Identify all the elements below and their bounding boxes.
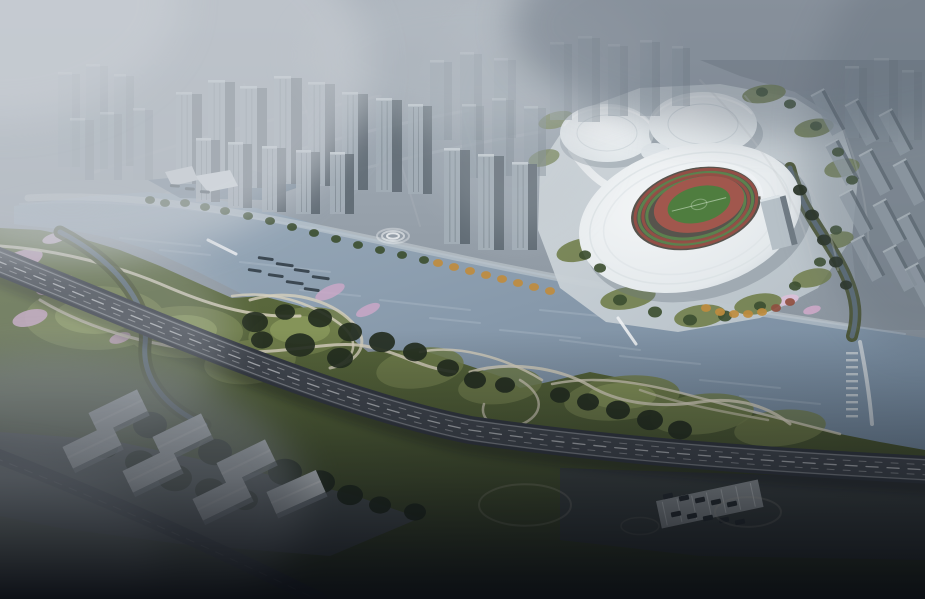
tree-cluster	[375, 246, 385, 254]
tree-cluster	[729, 310, 739, 318]
tree-cluster	[771, 304, 781, 312]
tree-cluster	[265, 217, 275, 225]
tree-cluster	[419, 256, 429, 264]
tree-cluster	[701, 304, 711, 312]
tree-cluster	[613, 295, 627, 306]
tree-cluster	[789, 281, 801, 290]
bottom-vignette	[0, 330, 925, 599]
aerial-rendering	[0, 0, 925, 599]
tree-cluster	[785, 298, 795, 306]
facade-line	[335, 155, 336, 212]
tree-cluster	[715, 308, 725, 316]
tree-cluster	[579, 250, 591, 259]
facade-line	[340, 155, 341, 212]
tree-cluster	[309, 229, 319, 237]
tower	[330, 152, 354, 214]
tree-cluster	[353, 241, 363, 249]
tree-cluster	[793, 185, 807, 196]
tree-cluster	[287, 223, 297, 231]
tree-cluster	[433, 259, 443, 267]
tree-cluster	[683, 315, 697, 326]
tree-cluster	[513, 279, 523, 287]
tree-cluster	[743, 310, 753, 318]
tower-side	[345, 154, 354, 214]
tree-cluster	[481, 271, 491, 279]
tree-cluster	[465, 267, 475, 275]
tree-cluster	[594, 263, 606, 272]
tree-cluster	[814, 257, 826, 266]
tree-cluster	[449, 263, 459, 271]
tree-cluster	[757, 308, 767, 316]
tree-cluster	[331, 235, 341, 243]
tree-cluster	[529, 283, 539, 291]
rendering-canvas	[0, 0, 925, 599]
tree-cluster	[648, 307, 662, 318]
tree-cluster	[397, 251, 407, 259]
tree-cluster	[275, 304, 295, 320]
tree-cluster	[242, 312, 268, 332]
tree-cluster	[308, 309, 332, 328]
tree-cluster	[497, 275, 507, 283]
tree-cluster	[545, 287, 555, 295]
